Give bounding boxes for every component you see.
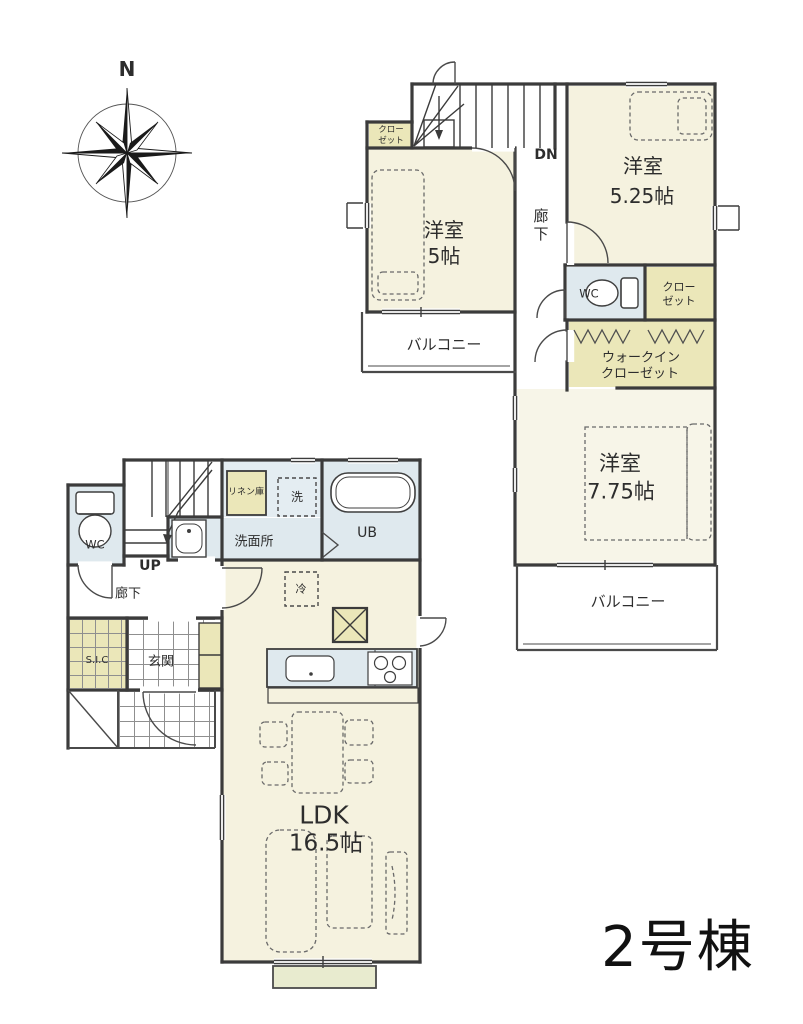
building-title: 2号棟 [601, 920, 755, 976]
fridge-label: 冷 [296, 584, 307, 595]
washer-label: 洗 [291, 491, 303, 503]
entrance-label: 玄関 [148, 656, 174, 669]
room-1f-ldk [223, 561, 419, 961]
entrance-cabinet [199, 623, 221, 688]
closet-e-label-1: クロー [663, 282, 696, 293]
room-1f-shoe-closet [69, 619, 127, 688]
hallway-2f-label: 廊下 [533, 208, 548, 244]
bedroom5-label-2: 5帖 [428, 246, 461, 266]
lavatory-label: 洗面所 [234, 536, 273, 549]
linen-closet-label: リネン庫 [228, 489, 264, 498]
closet-nw-label-2: ゼット [378, 137, 404, 146]
stairs-up-label: UP [139, 559, 161, 573]
kitchen-counter [267, 649, 417, 687]
terrace-step [273, 966, 376, 988]
floorplan-page: N クロー ゼット DN 洋室 5帖 廊下 洋室 5.25帖 WC クロー ゼッ… [0, 0, 803, 1024]
bedroom775-label-1: 洋室 [599, 454, 641, 475]
wc-1f-label: WC [85, 539, 104, 551]
closet-e-label-2: ゼット [663, 296, 696, 307]
stairs-2f [414, 84, 540, 148]
walkin-closet-label-2: クローゼット [601, 368, 679, 381]
shoe-closet-label: S.I.C [86, 656, 109, 666]
hallway-1f-label: 廊下 [115, 588, 141, 601]
room-1f-wc [69, 486, 123, 564]
ldk-label-2: 16.5帖 [289, 833, 363, 856]
bedroom775-label-2: 7.75帖 [587, 482, 655, 503]
ldk-label-1: LDK [299, 803, 349, 828]
bedroom525-label-2: 5.25帖 [610, 186, 675, 206]
closet-nw-label-1: クロー [378, 126, 404, 135]
stairs-down-label: DN [534, 148, 557, 162]
compass-icon [62, 88, 192, 218]
balcony-west-label: バルコニー [407, 338, 482, 353]
balcony-south-label: バルコニー [591, 595, 666, 610]
compass-north-label: N [119, 59, 136, 79]
wc-2f-label: WC [579, 288, 598, 300]
bedroom5-label-1: 洋室 [424, 220, 464, 240]
walkin-closet-label-1: ウォークイン [602, 352, 680, 365]
bedroom525-label-1: 洋室 [623, 156, 663, 176]
room-1f-unit-bath [323, 461, 419, 559]
room-2f-bedroom775 [517, 389, 714, 564]
unit-bath-label: UB [357, 526, 377, 540]
porch-tiles [119, 691, 215, 747]
